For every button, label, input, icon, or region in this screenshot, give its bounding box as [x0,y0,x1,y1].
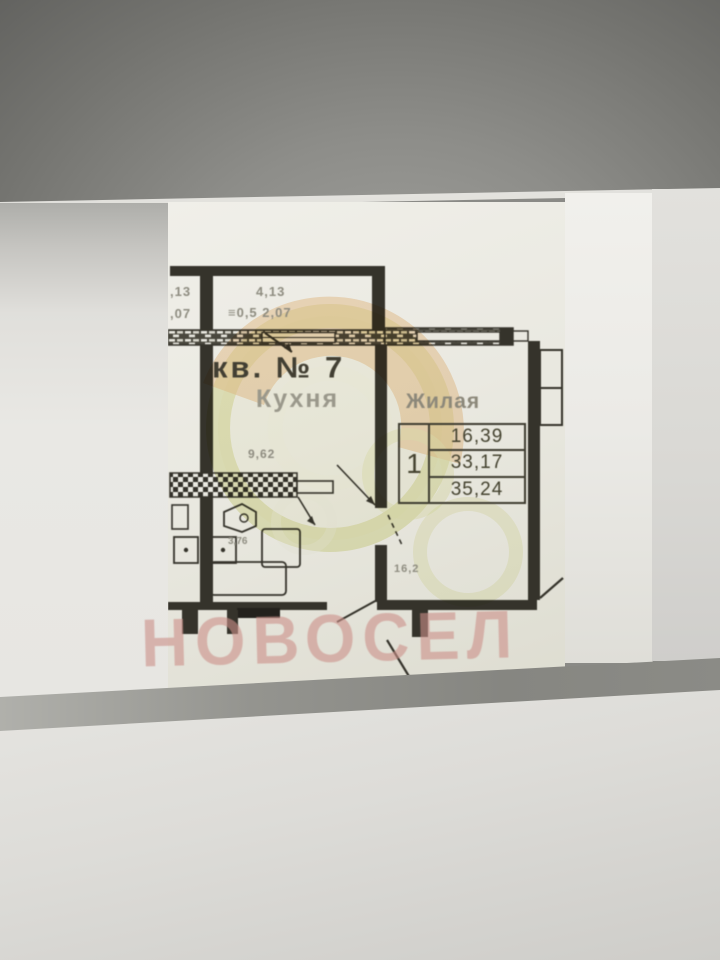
area-table: 1 16,39 33,17 35,24 [398,423,526,504]
area-table-total-area: 35,24 [430,476,524,502]
kitchen-fixture-dim: 3,76 [228,536,247,547]
apartment-title: кв. № 7 [212,351,345,385]
kitchen-area-dim: 9,62 [248,447,275,461]
area-table-apartment-area: 33,17 [430,449,524,475]
novosel-watermark: НОВОСЕЛ [140,593,602,682]
far-right-paper [652,189,720,661]
cut-dim-depth: ,07 [170,306,191,321]
balcony-dim-length: 4,13 [256,284,285,299]
balcony-dim-depth: ≡0,5 2,07 [228,305,292,320]
cut-dim-length: ,13 [170,284,191,299]
kitchen-label: Кухня [256,385,339,414]
listing-photo: 4,13 ≡0,5 2,07 ,13 ,07 кв. № 7 Кухня 9,6… [0,0,720,960]
area-table-living-area: 16,39 [430,425,524,449]
living-room-dim: 16,2 [394,563,419,575]
living-room-label: Жилая [406,390,480,414]
area-table-rooms-count: 1 [400,425,430,502]
